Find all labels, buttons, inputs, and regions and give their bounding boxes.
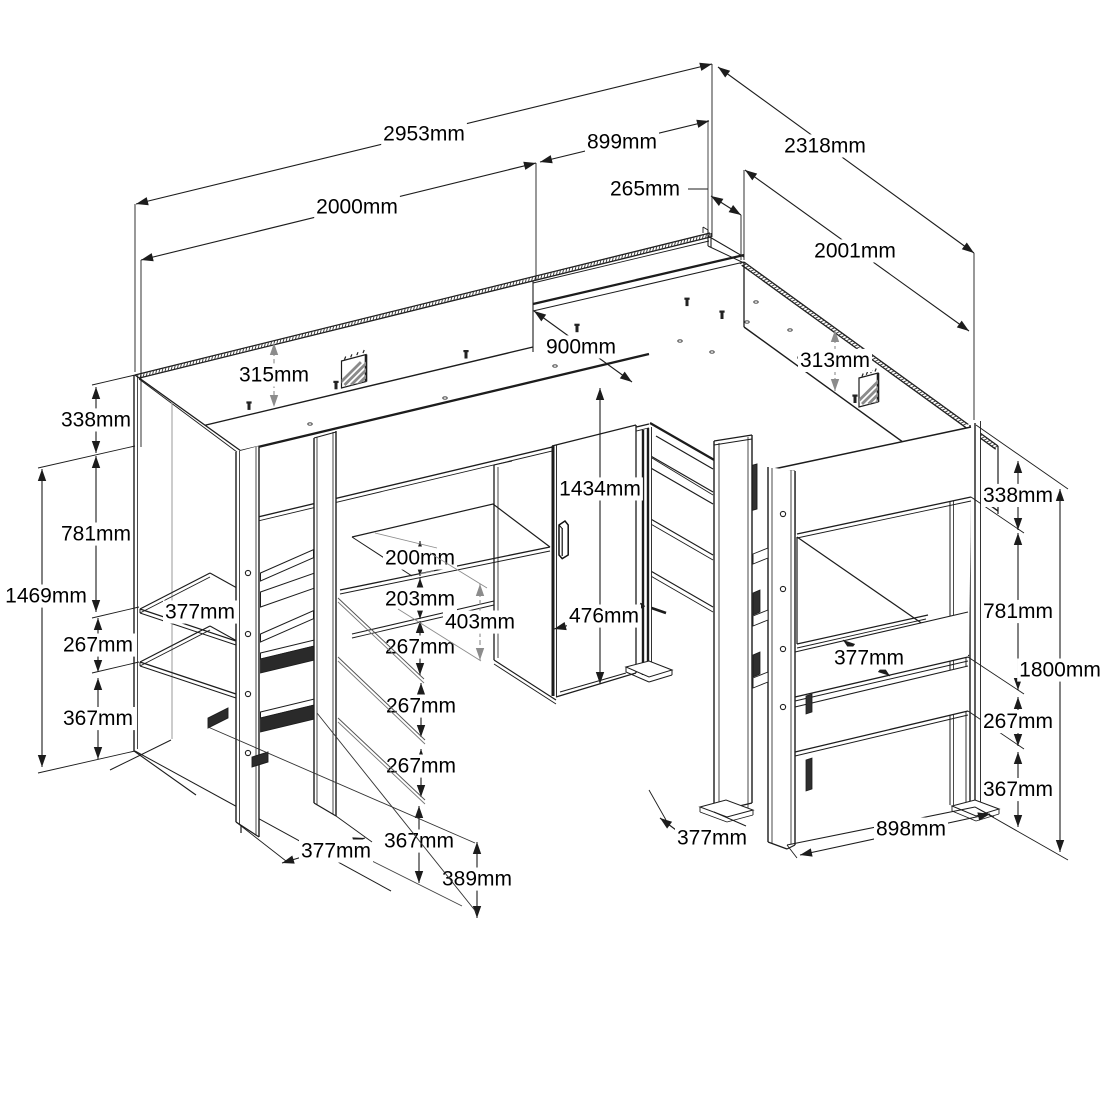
svg-text:2318mm: 2318mm: [784, 135, 866, 158]
svg-text:377mm: 377mm: [677, 827, 747, 850]
svg-text:377mm: 377mm: [165, 601, 235, 624]
svg-text:1800mm: 1800mm: [1019, 659, 1100, 682]
svg-text:377mm: 377mm: [301, 840, 371, 863]
svg-text:898mm: 898mm: [876, 818, 946, 841]
svg-text:367mm: 367mm: [63, 707, 133, 730]
svg-text:1469mm: 1469mm: [5, 585, 87, 608]
svg-text:313mm: 313mm: [800, 349, 870, 372]
svg-text:899mm: 899mm: [587, 131, 657, 154]
svg-text:267mm: 267mm: [386, 695, 456, 718]
svg-text:267mm: 267mm: [385, 636, 455, 659]
svg-text:367mm: 367mm: [983, 778, 1053, 801]
svg-text:338mm: 338mm: [983, 484, 1053, 507]
svg-text:267mm: 267mm: [983, 710, 1053, 733]
svg-text:900mm: 900mm: [546, 336, 616, 359]
svg-text:2000mm: 2000mm: [316, 196, 398, 219]
svg-text:267mm: 267mm: [386, 755, 456, 778]
svg-text:476mm: 476mm: [569, 605, 639, 628]
svg-text:403mm: 403mm: [445, 611, 515, 634]
svg-text:781mm: 781mm: [983, 600, 1053, 623]
svg-text:2953mm: 2953mm: [383, 123, 465, 146]
svg-text:265mm: 265mm: [610, 178, 680, 201]
svg-text:203mm: 203mm: [385, 588, 455, 611]
svg-text:315mm: 315mm: [239, 364, 309, 387]
svg-text:267mm: 267mm: [63, 634, 133, 657]
svg-text:389mm: 389mm: [442, 868, 512, 891]
svg-text:200mm: 200mm: [385, 547, 455, 570]
svg-text:781mm: 781mm: [61, 523, 131, 546]
svg-text:2001mm: 2001mm: [814, 240, 896, 263]
svg-text:338mm: 338mm: [61, 409, 131, 432]
svg-text:1434mm: 1434mm: [559, 478, 641, 501]
svg-text:377mm: 377mm: [834, 647, 904, 670]
